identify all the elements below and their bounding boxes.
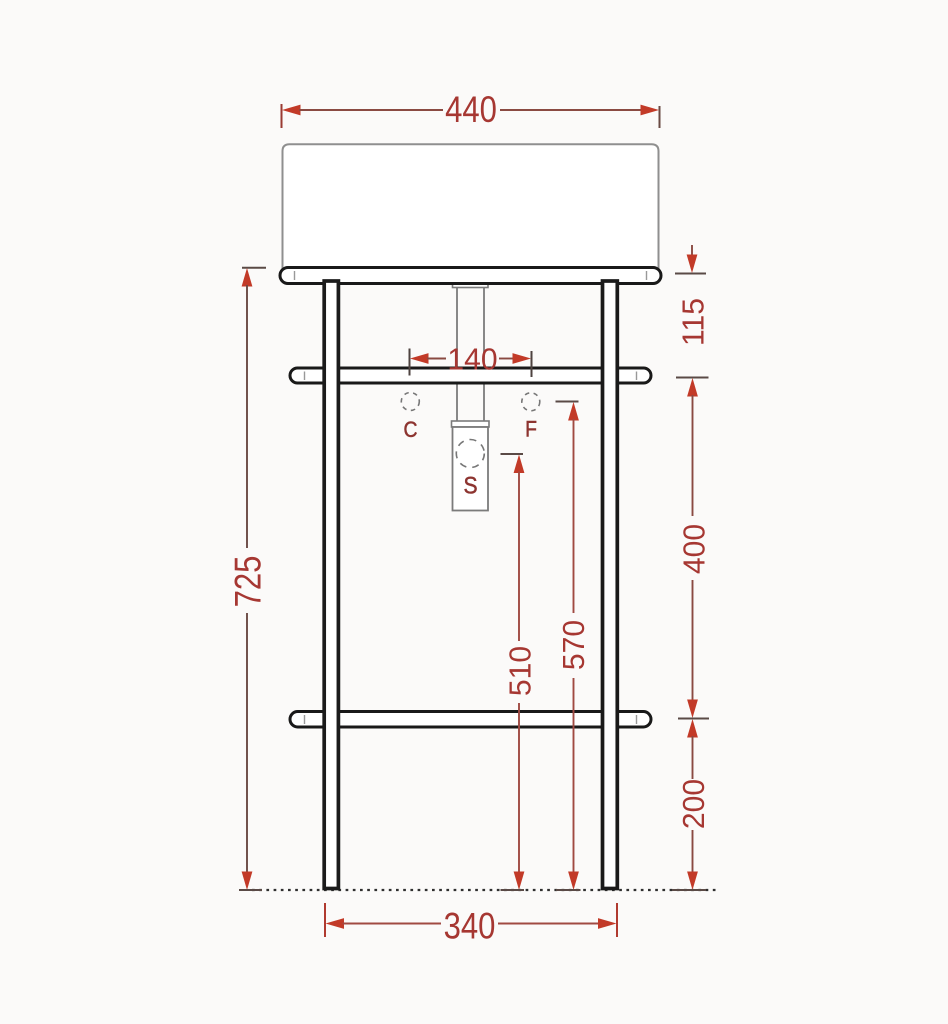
svg-text:440: 440 [445,90,497,131]
svg-text:570: 570 [557,620,592,670]
svg-text:340: 340 [444,906,496,947]
svg-text:S: S [463,472,477,499]
svg-text:510: 510 [503,646,538,696]
svg-text:725: 725 [228,556,269,608]
svg-text:C: C [404,418,418,442]
svg-text:F: F [525,417,537,441]
svg-text:115: 115 [676,298,711,346]
svg-text:140: 140 [447,342,497,377]
svg-text:200: 200 [677,779,712,829]
svg-text:400: 400 [677,524,712,574]
